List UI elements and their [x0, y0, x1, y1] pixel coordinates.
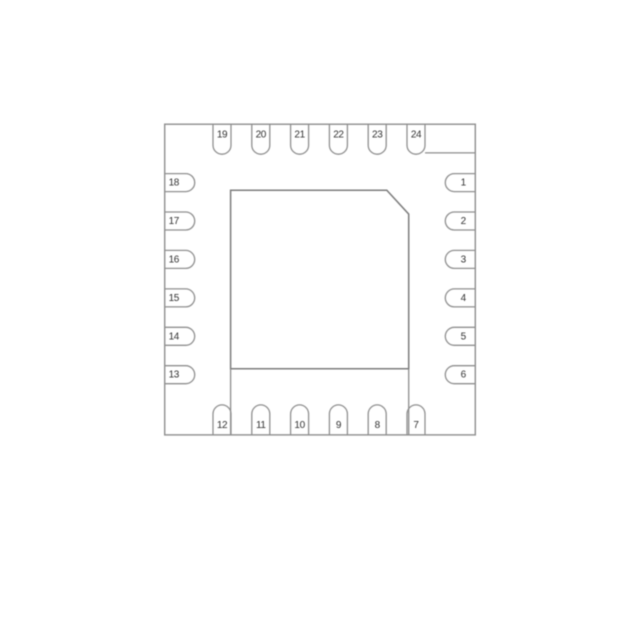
- svg-text:22: 22: [333, 129, 344, 140]
- svg-text:9: 9: [336, 420, 342, 431]
- svg-text:23: 23: [372, 129, 383, 140]
- svg-text:17: 17: [169, 216, 180, 227]
- svg-text:10: 10: [294, 420, 305, 431]
- svg-text:7: 7: [413, 420, 419, 431]
- svg-text:19: 19: [217, 129, 228, 140]
- svg-text:11: 11: [256, 420, 266, 431]
- svg-text:16: 16: [169, 254, 180, 265]
- svg-text:14: 14: [169, 331, 180, 342]
- svg-text:13: 13: [169, 370, 180, 381]
- svg-text:6: 6: [461, 370, 467, 381]
- svg-text:12: 12: [217, 420, 228, 431]
- svg-text:2: 2: [461, 216, 467, 227]
- svg-text:3: 3: [461, 254, 467, 265]
- svg-text:5: 5: [461, 331, 467, 342]
- svg-text:21: 21: [294, 129, 305, 140]
- svg-text:8: 8: [375, 420, 381, 431]
- svg-text:1: 1: [461, 178, 467, 189]
- svg-text:24: 24: [411, 129, 422, 140]
- svg-text:20: 20: [256, 129, 267, 140]
- svg-text:18: 18: [169, 178, 180, 189]
- svg-text:4: 4: [461, 293, 467, 304]
- svg-text:15: 15: [169, 293, 180, 304]
